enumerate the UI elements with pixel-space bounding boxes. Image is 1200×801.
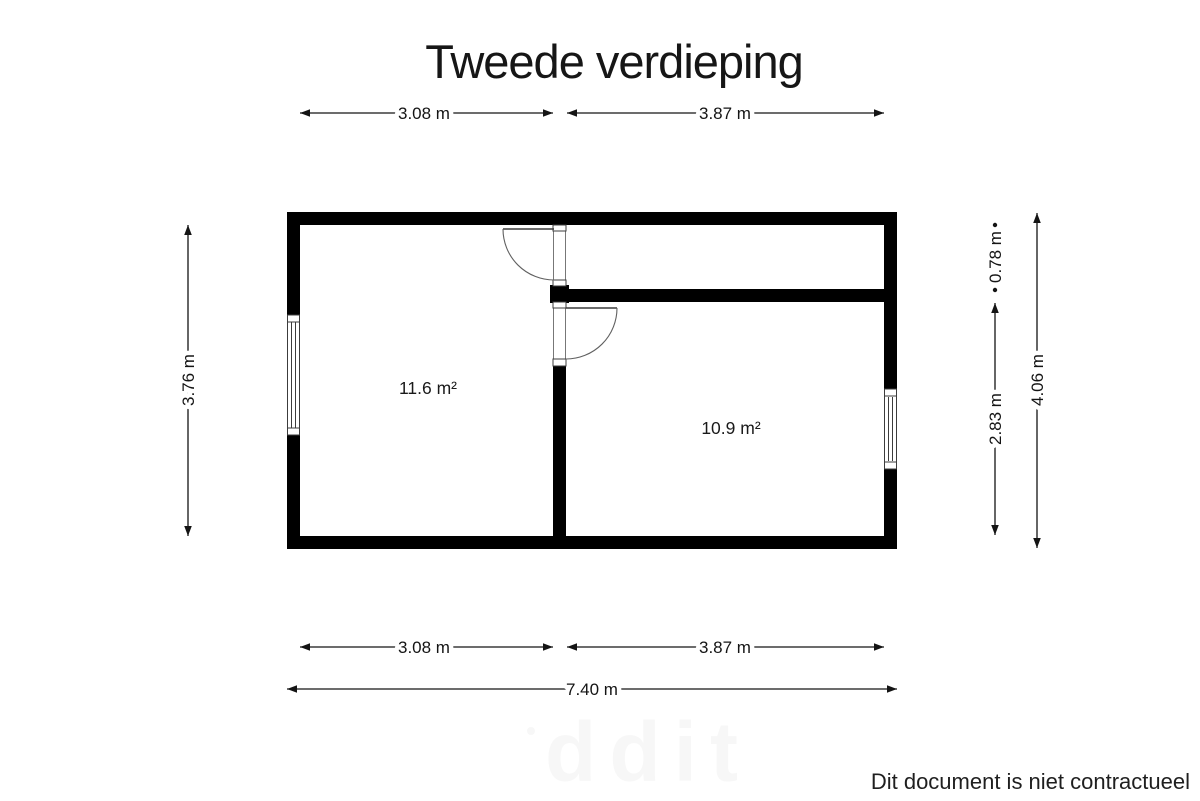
- arrowhead-right: [874, 643, 884, 651]
- wall-left-upper: [287, 212, 300, 318]
- room-area-label-left: 11.6 m²: [399, 378, 457, 398]
- wall-top: [287, 212, 897, 225]
- window-left-cap-bottom: [288, 428, 300, 435]
- window-right-band: [885, 396, 897, 462]
- door-opening-upper: [503, 225, 566, 286]
- room-area-label-right: 10.9 m²: [701, 418, 760, 438]
- dimension-end-dot: [993, 288, 997, 292]
- arrowhead-up: [184, 225, 192, 235]
- window-left-band: [288, 318, 300, 435]
- window-right-cap-bottom: [885, 462, 897, 469]
- dimension-label: 7.40 m: [566, 680, 618, 699]
- door-frame-cap: [553, 280, 566, 286]
- arrowhead-left: [567, 109, 577, 117]
- arrowhead-right: [543, 109, 553, 117]
- window-right: [885, 389, 897, 469]
- window-left: [288, 315, 300, 435]
- door-opening-lower: [553, 302, 617, 366]
- wall-right-lower: [884, 469, 897, 549]
- dimension-top-left-width: 3.08 m: [300, 104, 553, 123]
- arrowhead-right: [543, 643, 553, 651]
- disclaimer-text: Dit document is niet contractueel: [871, 769, 1190, 794]
- dimension-right-lower-height: 2.83 m: [986, 303, 1005, 535]
- watermark: ddit: [545, 705, 751, 799]
- wall-divider-junction: [550, 285, 569, 303]
- dimension-bottom-right-width: 3.87 m: [567, 638, 884, 657]
- arrowhead-left: [300, 643, 310, 651]
- arrowhead-right: [874, 109, 884, 117]
- dimension-right-upper-height: 0.78 m: [986, 223, 1005, 292]
- walls: [287, 212, 897, 549]
- dimension-right-total-height: 4.06 m: [1028, 213, 1047, 548]
- arrowhead-left: [300, 109, 310, 117]
- floor-plan-page: Tweede verdieping ddit: [0, 0, 1200, 801]
- wall-interior-horizontal: [553, 289, 884, 302]
- floor-plan-drawing: Tweede verdieping ddit: [0, 0, 1200, 801]
- arrowhead-right: [887, 685, 897, 693]
- watermark-dot: [527, 727, 535, 735]
- dimension-left-height: 3.76 m: [179, 225, 198, 536]
- door-swing-arc: [566, 308, 617, 359]
- dimension-label: 3.87 m: [699, 104, 751, 123]
- window-left-cap-top: [288, 315, 300, 322]
- wall-bottom: [287, 536, 897, 549]
- arrowhead-up: [991, 303, 999, 313]
- wall-divider-lower: [553, 366, 566, 536]
- arrowhead-up: [1033, 213, 1041, 223]
- dimension-label: 3.08 m: [398, 104, 450, 123]
- arrowhead-left: [567, 643, 577, 651]
- dimension-bottom-left-width: 3.08 m: [300, 638, 553, 657]
- page-title: Tweede verdieping: [425, 35, 803, 88]
- door-frame-cap: [553, 225, 566, 231]
- dimension-label: 2.83 m: [986, 393, 1005, 445]
- dimension-label: 4.06 m: [1028, 354, 1047, 406]
- dimension-label: 3.87 m: [699, 638, 751, 657]
- door-frame-cap: [553, 359, 566, 366]
- arrowhead-left: [287, 685, 297, 693]
- wall-left-lower: [287, 435, 300, 549]
- wall-right-upper: [884, 212, 897, 390]
- dimension-label: 0.78 m: [986, 231, 1005, 283]
- window-right-cap-top: [885, 389, 897, 396]
- dimension-label: 3.76 m: [179, 354, 198, 406]
- arrowhead-down: [1033, 538, 1041, 548]
- dimension-top-right-width: 3.87 m: [567, 104, 884, 123]
- arrowhead-down: [184, 526, 192, 536]
- arrowhead-down: [991, 525, 999, 535]
- dimension-label: 3.08 m: [398, 638, 450, 657]
- dimension-bottom-total-width: 7.40 m: [287, 680, 897, 699]
- door-frame-cap: [553, 302, 566, 308]
- door-swing-arc: [503, 229, 554, 280]
- dimension-end-dot: [993, 223, 997, 227]
